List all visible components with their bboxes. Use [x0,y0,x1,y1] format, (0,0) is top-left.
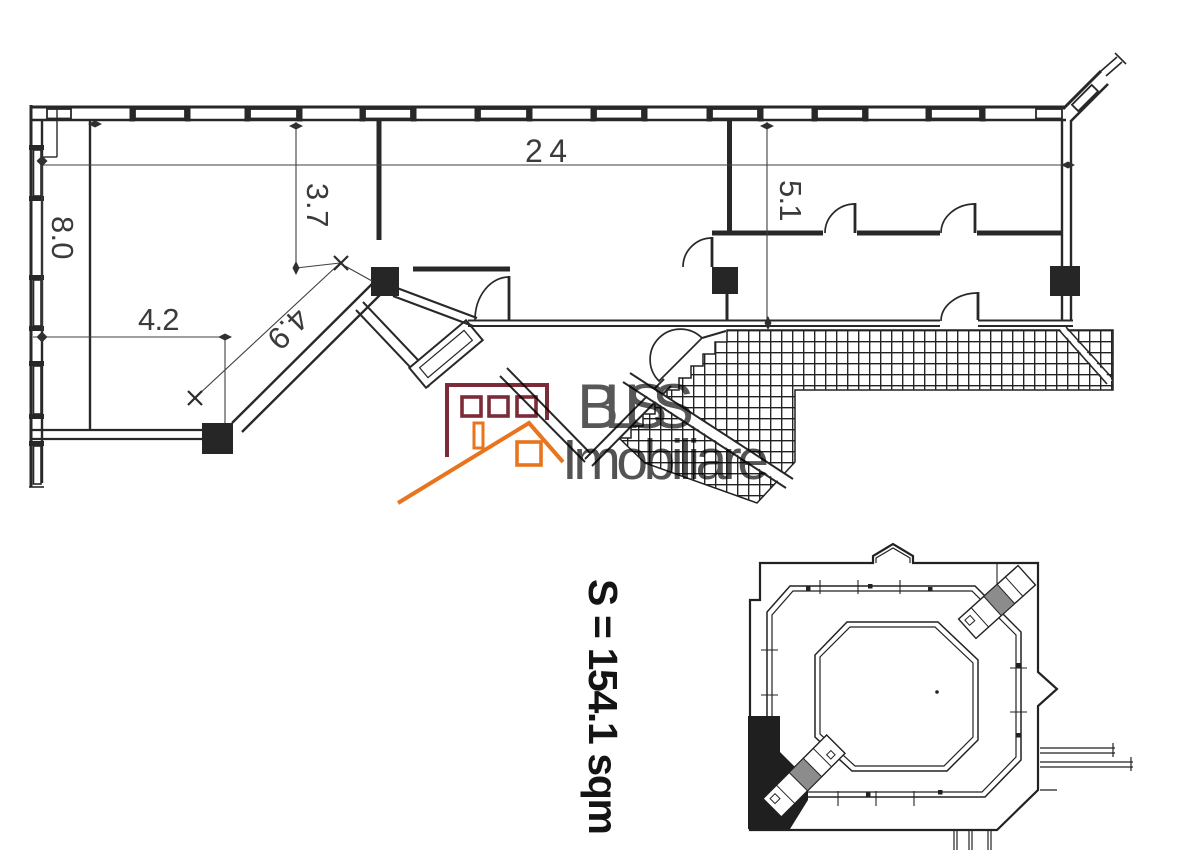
corridor-door-frame [409,320,482,387]
floor-plan-drawing: 24 3.7 5.1 8.0 4.2 4.9 S = 154.1 sqm [0,0,1200,858]
key-plan-right-wings [1040,743,1133,790]
key-plan-bottom-stub [954,831,991,850]
window [250,109,297,119]
window [47,109,71,119]
window [596,109,642,119]
floor-plan-page: 24 3.7 5.1 8.0 4.2 4.9 S = 154.1 sqm [0,0,1200,858]
top-exterior-wall [30,53,1126,122]
door-swing [683,238,712,267]
dim-label-5-1: 5.1 [773,180,808,222]
brand-tagline: Imobiliare [562,428,769,492]
column [1050,266,1080,296]
door-swing [825,204,855,233]
window [135,109,185,119]
window [34,446,42,484]
key-plan-center-dot [935,690,939,694]
logo-roof-window [517,442,541,465]
bottom-left-wall [31,430,204,439]
area-label: S = 154.1 sqm [580,579,626,836]
diagonal-wall-line [242,287,388,432]
key-plan-courtyard-inner [820,627,973,766]
door-swing [941,204,975,233]
dim-marker [218,334,232,341]
logo-roof [398,423,563,503]
window [931,109,980,119]
window [365,109,411,119]
logo-building-window [489,397,508,416]
dim-label-24: 24 [525,133,567,169]
terrace-edge [702,331,726,338]
column [202,423,233,454]
window [1036,109,1062,119]
dim-stub-3-7 [296,263,340,268]
dim-marker [765,316,772,330]
door-swing [475,277,509,320]
window [712,109,758,119]
dim-label-4-2: 4.2 [138,302,180,337]
window [34,280,42,326]
window [34,366,42,414]
dim-leader [345,266,372,281]
window [817,109,863,119]
door-frame-outline [409,320,482,387]
dim-label-8-0: 8.0 [45,216,80,260]
column [712,267,738,294]
logo-building-window [462,397,481,416]
window [34,150,42,196]
window [480,109,527,119]
dim-marker [289,123,303,130]
dim-marker [760,123,774,130]
key-plan [748,544,1133,850]
door-swing [941,293,978,321]
logo-chimney [474,423,483,448]
window-band [47,109,1062,119]
dim-marker [293,261,300,275]
dim-marker [37,332,48,343]
diagonal-wall-line [232,278,378,423]
dim-label-3-7: 3.7 [300,183,335,228]
column [371,267,399,296]
